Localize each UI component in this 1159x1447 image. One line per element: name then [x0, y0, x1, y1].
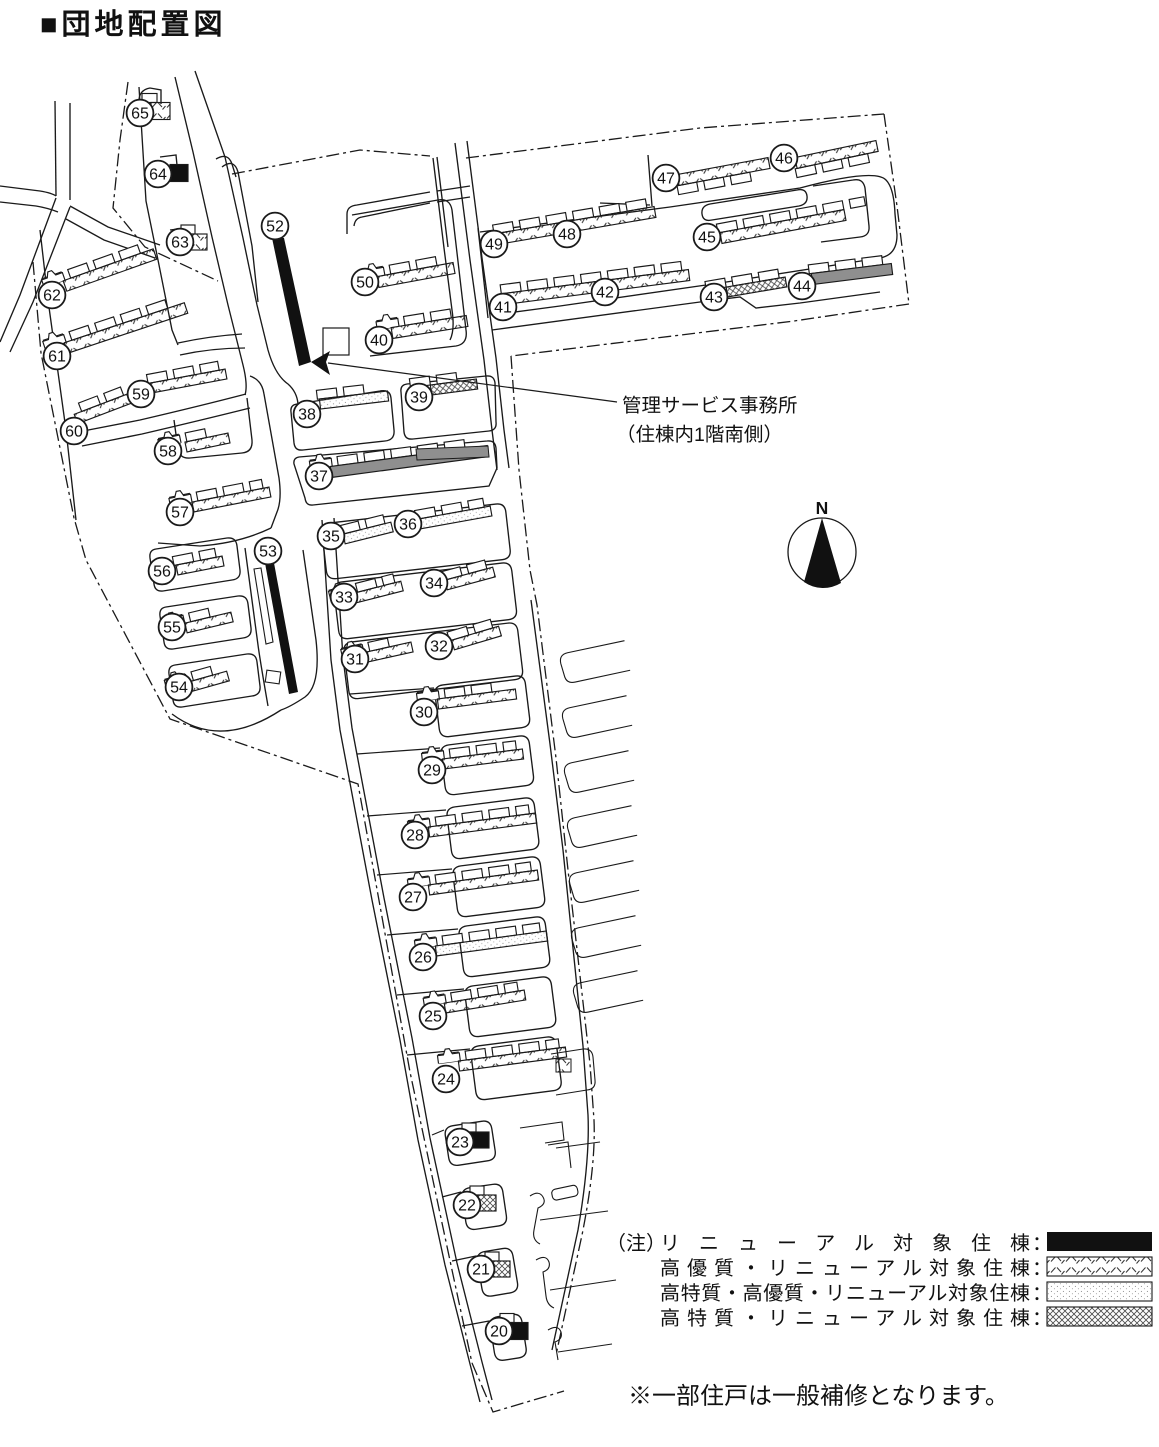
svg-text:（注）: （注） — [606, 1232, 666, 1255]
svg-text:65: 65 — [131, 105, 149, 122]
svg-text:59: 59 — [132, 386, 150, 403]
svg-text:22: 22 — [458, 1197, 476, 1214]
svg-text:44: 44 — [793, 278, 811, 295]
svg-text:37: 37 — [310, 468, 328, 485]
svg-text:55: 55 — [163, 619, 181, 636]
svg-text:54: 54 — [170, 679, 188, 696]
svg-text:N: N — [816, 498, 829, 518]
svg-text:57: 57 — [171, 504, 189, 521]
svg-text:63: 63 — [171, 234, 189, 251]
svg-text:53: 53 — [259, 543, 277, 560]
svg-text:31: 31 — [346, 651, 364, 668]
svg-text:（住棟内1階南側）: （住棟内1階南側） — [616, 424, 783, 446]
svg-text:35: 35 — [322, 528, 340, 545]
svg-text:25: 25 — [424, 1008, 442, 1025]
svg-text:49: 49 — [485, 236, 503, 253]
svg-text:■団地配置図: ■団地配置図 — [40, 9, 227, 41]
svg-text:※一部住戸は一般補修となります。: ※一部住戸は一般補修となります。 — [628, 1383, 1009, 1410]
svg-text:管理サービス事務所: 管理サービス事務所 — [622, 395, 798, 417]
svg-text:29: 29 — [423, 762, 441, 779]
svg-text:23: 23 — [451, 1134, 469, 1151]
svg-text:27: 27 — [404, 889, 422, 906]
svg-text:20: 20 — [490, 1323, 508, 1340]
svg-text:52: 52 — [266, 218, 284, 235]
svg-text:43: 43 — [705, 289, 723, 306]
svg-text:60: 60 — [65, 423, 83, 440]
svg-text:48: 48 — [558, 226, 576, 243]
svg-text:61: 61 — [48, 348, 66, 365]
svg-text:56: 56 — [153, 563, 171, 580]
svg-text:39: 39 — [410, 389, 428, 406]
svg-text:40: 40 — [370, 332, 388, 349]
svg-text:58: 58 — [159, 443, 177, 460]
svg-text:50: 50 — [356, 274, 374, 291]
svg-text:30: 30 — [415, 704, 433, 721]
svg-text:33: 33 — [335, 589, 353, 606]
svg-text:38: 38 — [298, 406, 316, 423]
svg-text:34: 34 — [425, 575, 443, 592]
svg-text:26: 26 — [414, 949, 432, 966]
svg-text:46: 46 — [775, 150, 793, 167]
svg-text:32: 32 — [430, 638, 448, 655]
svg-text:47: 47 — [657, 170, 675, 187]
svg-text:41: 41 — [494, 299, 512, 316]
svg-text:24: 24 — [437, 1071, 455, 1088]
svg-text:45: 45 — [698, 229, 716, 246]
svg-text:28: 28 — [406, 827, 424, 844]
svg-text:64: 64 — [149, 166, 167, 183]
svg-text:高特質・高優質・リニューアル対象住棟: 高特質・高優質・リニューアル対象住棟 — [660, 1283, 1030, 1305]
svg-text:42: 42 — [596, 284, 614, 301]
svg-text:36: 36 — [399, 516, 417, 533]
svg-text:62: 62 — [43, 287, 61, 304]
svg-text:21: 21 — [472, 1261, 490, 1278]
